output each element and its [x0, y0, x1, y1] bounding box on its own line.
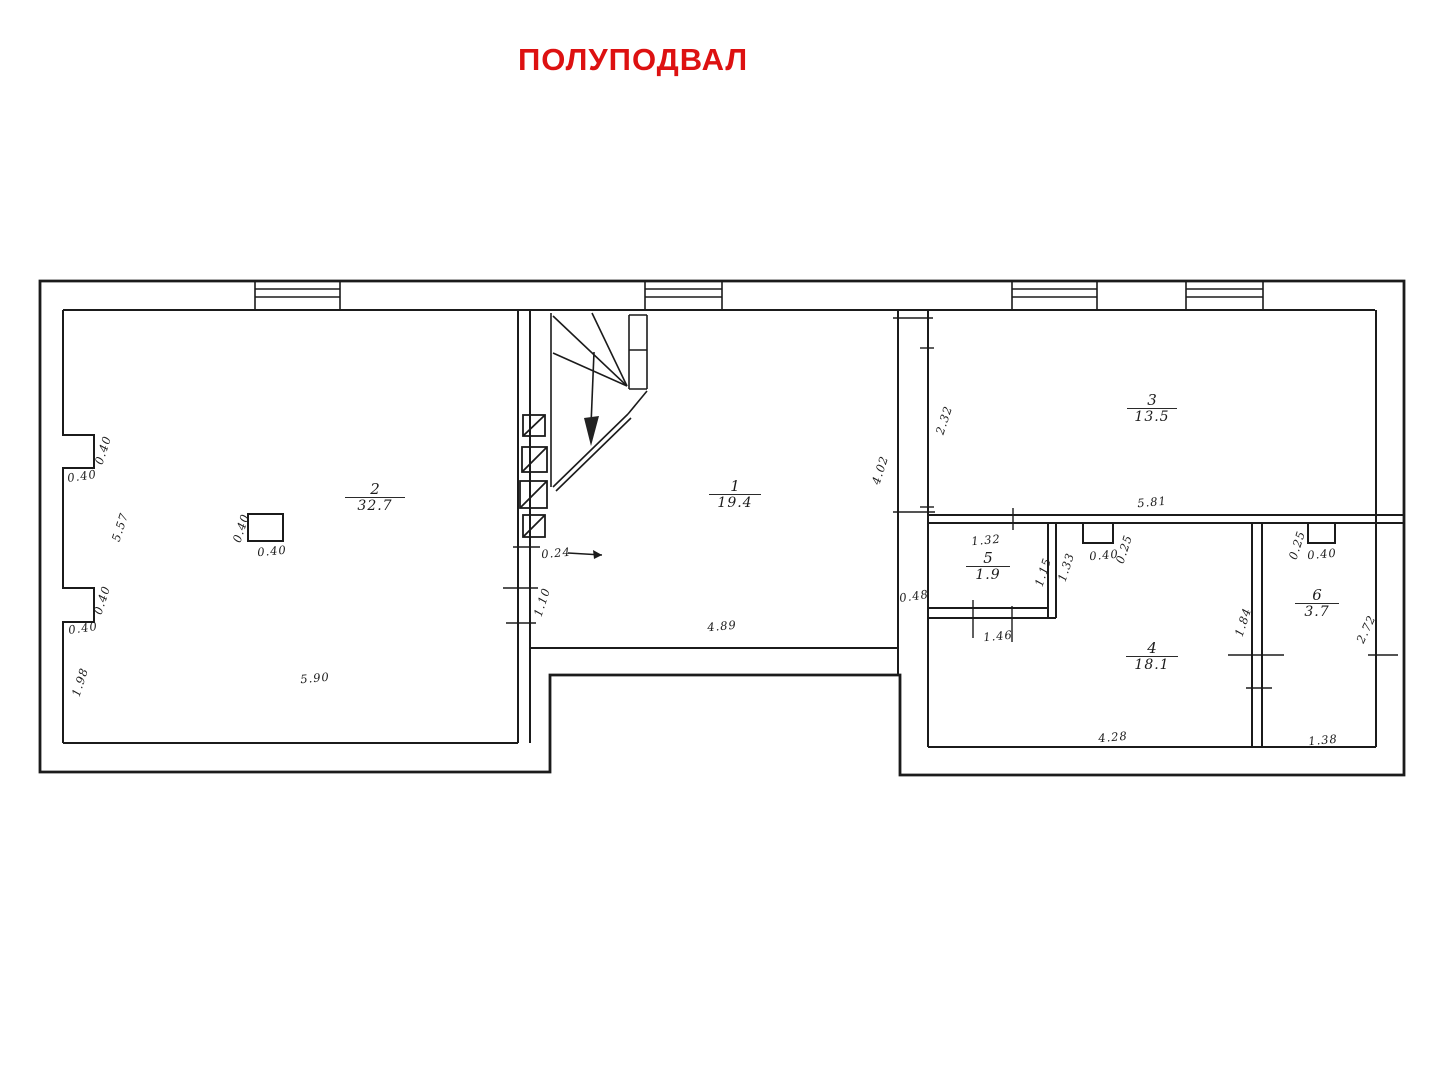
- dimension-label: 0.40: [1307, 546, 1338, 563]
- hatched-columns: [520, 415, 547, 537]
- stair-direction-arrow: [584, 352, 599, 446]
- pilaster-room4: [1083, 523, 1113, 543]
- room-label-1: 119.4: [709, 479, 761, 511]
- dimension-label: 5.81: [1137, 494, 1168, 511]
- room-label-3: 313.5: [1127, 393, 1177, 425]
- leader-arrow: [568, 550, 602, 559]
- dimension-label: 1.32: [971, 532, 1002, 549]
- room-area: 3.7: [1295, 605, 1339, 620]
- window-1: [255, 281, 340, 310]
- column: [248, 514, 283, 541]
- dimension-label: 4.28: [1098, 729, 1129, 746]
- inner-walls: [63, 310, 1403, 747]
- room-label-4: 418.1: [1126, 641, 1178, 673]
- room-area: 32.7: [345, 499, 405, 514]
- dimension-label: 0.24: [541, 545, 572, 562]
- floor-plan-drawing: [0, 0, 1436, 1072]
- room-number: 2: [345, 482, 405, 496]
- stairs: [551, 313, 647, 491]
- room-area: 18.1: [1126, 658, 1178, 673]
- room-area: 19.4: [709, 496, 761, 511]
- room-number: 1: [709, 479, 761, 493]
- room-number: 3: [1127, 393, 1177, 407]
- window-4: [1186, 281, 1263, 310]
- tick-marks: [503, 318, 1398, 688]
- dimension-label: 1.46: [983, 628, 1014, 645]
- dimension-label: 5.90: [300, 670, 331, 687]
- window-3: [1012, 281, 1097, 310]
- room-number: 6: [1295, 588, 1339, 602]
- floor-plan-page: ПОЛУПОДВАЛ: [0, 0, 1436, 1072]
- room-label-6: 63.7: [1295, 588, 1339, 620]
- pilaster-room6: [1308, 523, 1335, 543]
- dimension-label: 0.40: [257, 543, 288, 560]
- room-label-2: 232.7: [345, 482, 405, 514]
- room-number: 4: [1126, 641, 1178, 655]
- dimension-label: 4.89: [707, 618, 738, 635]
- room-area: 13.5: [1127, 410, 1177, 425]
- room-label-5: 51.9: [966, 551, 1010, 583]
- windows: [255, 281, 1263, 310]
- window-2: [645, 281, 722, 310]
- dimension-label: 1.38: [1308, 732, 1339, 749]
- room-area: 1.9: [966, 568, 1010, 583]
- room-number: 5: [966, 551, 1010, 565]
